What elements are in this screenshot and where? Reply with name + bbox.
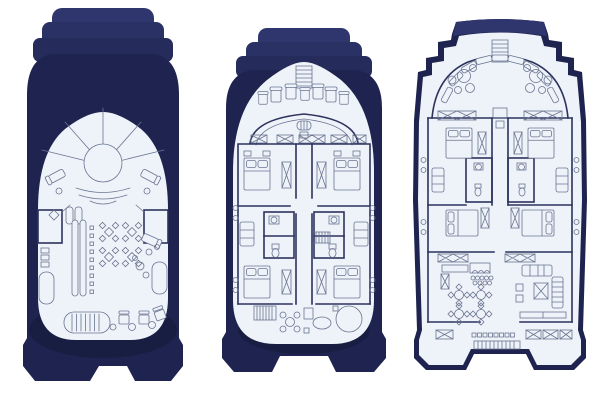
double-bed-icon [446,128,472,158]
yacht-deck-plans-figure [0,0,600,400]
deck-chair-icon [119,311,129,324]
main-deck-plan [413,19,587,370]
double-bed-icon [244,266,270,298]
jacuzzi-icon [84,144,122,182]
double-bed-icon [334,158,360,190]
helm-seat-icon [339,92,349,105]
double-bed-icon [522,210,554,236]
helm-seat-icon [325,87,337,102]
helm-seat-icon [300,88,310,101]
deck-chair-icon [139,311,149,324]
helm-seat-icon [258,92,268,105]
double-bed-icon [244,158,270,190]
sun-deck-plan [23,8,183,381]
double-bed-icon [334,266,360,298]
double-bed-icon [528,128,554,158]
double-bed-icon [446,210,478,236]
helm-seat-icon [270,87,282,102]
deck-floor [233,62,374,344]
helm-seat-icon [312,84,324,99]
helm-seat-icon [285,84,297,99]
deck-plans-canvas [0,0,600,400]
upper-deck-plan [222,28,386,372]
